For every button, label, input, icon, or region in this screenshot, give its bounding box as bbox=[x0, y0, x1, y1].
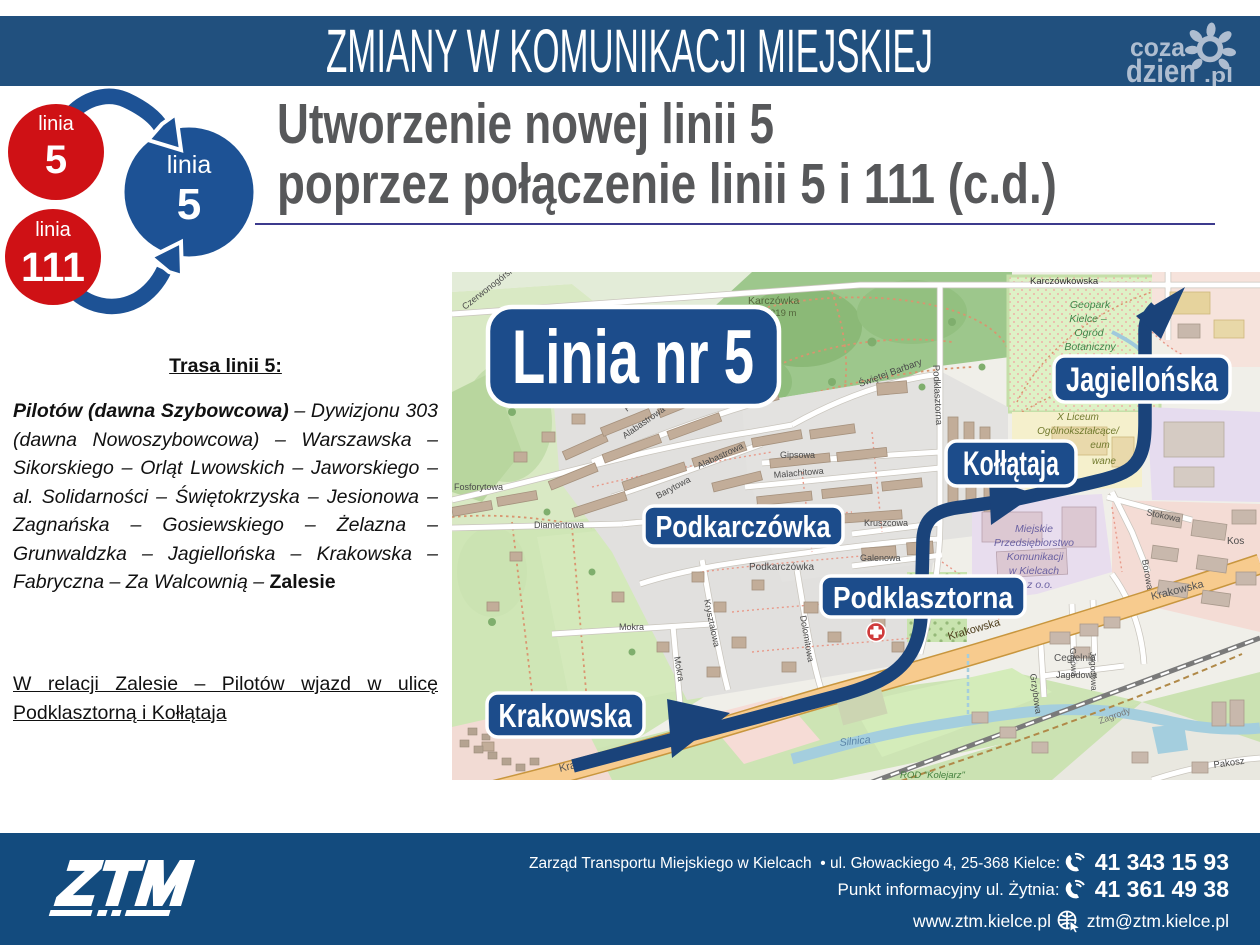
svg-text:Podkarczówka: Podkarczówka bbox=[749, 562, 814, 573]
svg-text:Ogólnokształcące/: Ogólnokształcące/ bbox=[1037, 426, 1120, 437]
svg-text:linia: linia bbox=[167, 151, 212, 179]
svg-text:Cegielnia: Cegielnia bbox=[1054, 653, 1096, 664]
svg-text:Fosforytowa: Fosforytowa bbox=[454, 482, 503, 492]
svg-text:5: 5 bbox=[45, 138, 67, 182]
svg-text:Geopark: Geopark bbox=[1070, 299, 1111, 311]
svg-text:Botaniczny: Botaniczny bbox=[1064, 341, 1116, 353]
svg-text:Kruszcowa: Kruszcowa bbox=[864, 518, 908, 528]
svg-text:Mokra: Mokra bbox=[619, 622, 644, 632]
svg-text:Jagiellońska: Jagiellońska bbox=[1066, 361, 1219, 399]
svg-text:Krakowska: Krakowska bbox=[499, 697, 632, 734]
svg-text:Miejskie: Miejskie bbox=[1015, 523, 1053, 535]
svg-text:ZTM: ZTM bbox=[50, 853, 202, 918]
svg-text:111: 111 bbox=[21, 244, 85, 290]
svg-text:Podklasztorna: Podklasztorna bbox=[833, 580, 1014, 615]
svg-text:Gipsowa: Gipsowa bbox=[780, 450, 815, 460]
svg-text:linia: linia bbox=[38, 113, 74, 135]
svg-text:Galenowa: Galenowa bbox=[860, 553, 901, 563]
svg-text:X Liceum: X Liceum bbox=[1056, 412, 1099, 423]
svg-text:Linia nr 5: Linia nr 5 bbox=[512, 315, 754, 400]
svg-text:5: 5 bbox=[177, 180, 201, 229]
svg-text:Kołłątaja: Kołłątaja bbox=[963, 445, 1060, 483]
svg-text:wane: wane bbox=[1092, 456, 1116, 467]
svg-text:Podkarczówka: Podkarczówka bbox=[656, 509, 832, 544]
svg-text:Kielce –: Kielce – bbox=[1069, 313, 1107, 325]
svg-text:Diamentowa: Diamentowa bbox=[534, 520, 584, 530]
svg-text:dzien: dzien bbox=[1126, 53, 1196, 86]
svg-text:linia: linia bbox=[35, 219, 71, 241]
svg-text:Przedsiębiorstwo: Przedsiębiorstwo bbox=[994, 537, 1074, 549]
svg-text:Kos: Kos bbox=[1227, 536, 1244, 547]
svg-text:eum: eum bbox=[1090, 440, 1109, 451]
svg-text:Karczówkowska: Karczówkowska bbox=[1030, 276, 1099, 287]
svg-text:Ogród: Ogród bbox=[1074, 327, 1104, 339]
svg-text:z o.o.: z o.o. bbox=[1026, 579, 1053, 591]
svg-text:ROD "Kolejarz": ROD "Kolejarz" bbox=[900, 770, 965, 780]
svg-text:Jagodowa: Jagodowa bbox=[1056, 670, 1097, 680]
svg-text:Komunikacji: Komunikacji bbox=[1007, 551, 1064, 563]
